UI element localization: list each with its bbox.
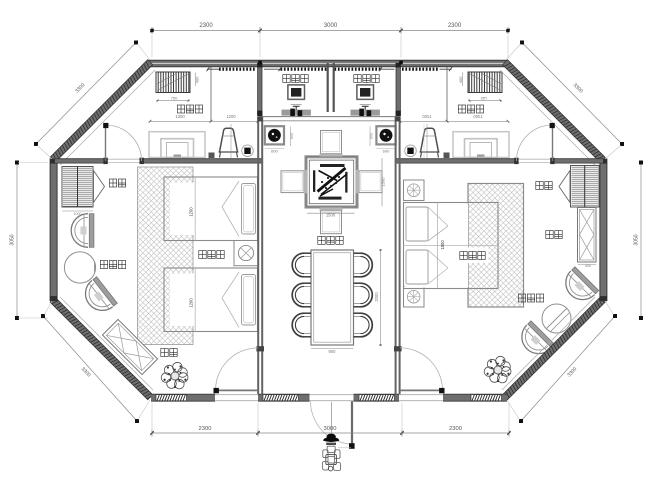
svg-text:900: 900 (329, 349, 337, 354)
svg-text:3050: 3050 (634, 234, 640, 245)
svg-text:1800: 1800 (440, 240, 445, 250)
svg-text:2300: 2300 (199, 23, 213, 29)
svg-text:600: 600 (383, 149, 390, 154)
svg-text:2300: 2300 (449, 426, 462, 432)
svg-text:600: 600 (370, 133, 374, 139)
svg-text:2300: 2300 (199, 426, 212, 432)
svg-text:2000: 2000 (374, 292, 379, 302)
svg-text:1300: 1300 (175, 114, 185, 119)
svg-text:1500: 1500 (381, 177, 386, 187)
svg-text:3000: 3000 (324, 426, 337, 432)
svg-text:1500: 1500 (326, 213, 336, 218)
svg-text:3050: 3050 (10, 234, 16, 245)
svg-text:2300: 2300 (448, 23, 462, 29)
svg-text:1300: 1300 (473, 114, 483, 119)
svg-text:750: 750 (171, 95, 178, 100)
svg-text:600: 600 (290, 133, 294, 139)
svg-text:750: 750 (480, 95, 487, 100)
svg-text:3000: 3000 (324, 23, 338, 29)
svg-text:1200: 1200 (422, 114, 432, 119)
svg-text:400: 400 (459, 76, 464, 83)
svg-text:400: 400 (194, 76, 199, 83)
svg-text:1200: 1200 (189, 207, 194, 217)
svg-text:1200: 1200 (189, 298, 194, 308)
svg-text:1200: 1200 (226, 114, 236, 119)
svg-text:600: 600 (271, 149, 278, 154)
